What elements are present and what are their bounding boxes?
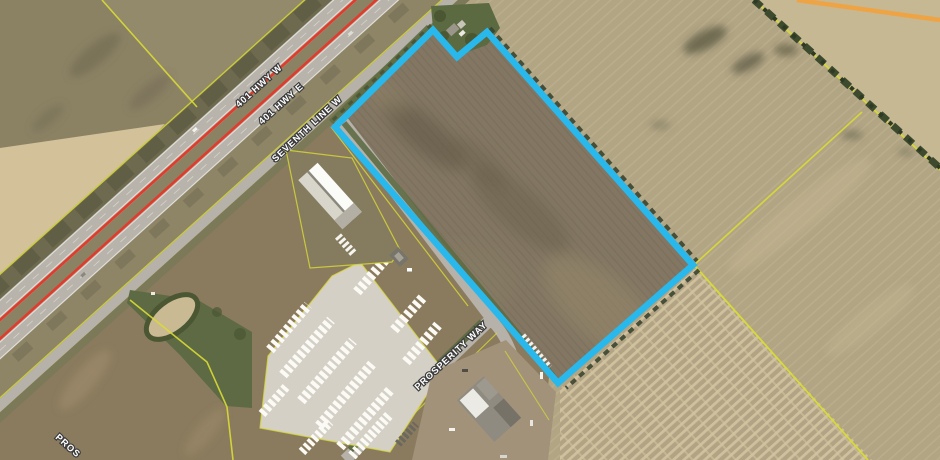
aerial-map[interactable]: 401 HWY W 401 HWY E SEVENTH LINE W PROSP…: [0, 0, 940, 460]
map-viewport[interactable]: 401 HWY W 401 HWY E SEVENTH LINE W PROSP…: [0, 0, 940, 460]
